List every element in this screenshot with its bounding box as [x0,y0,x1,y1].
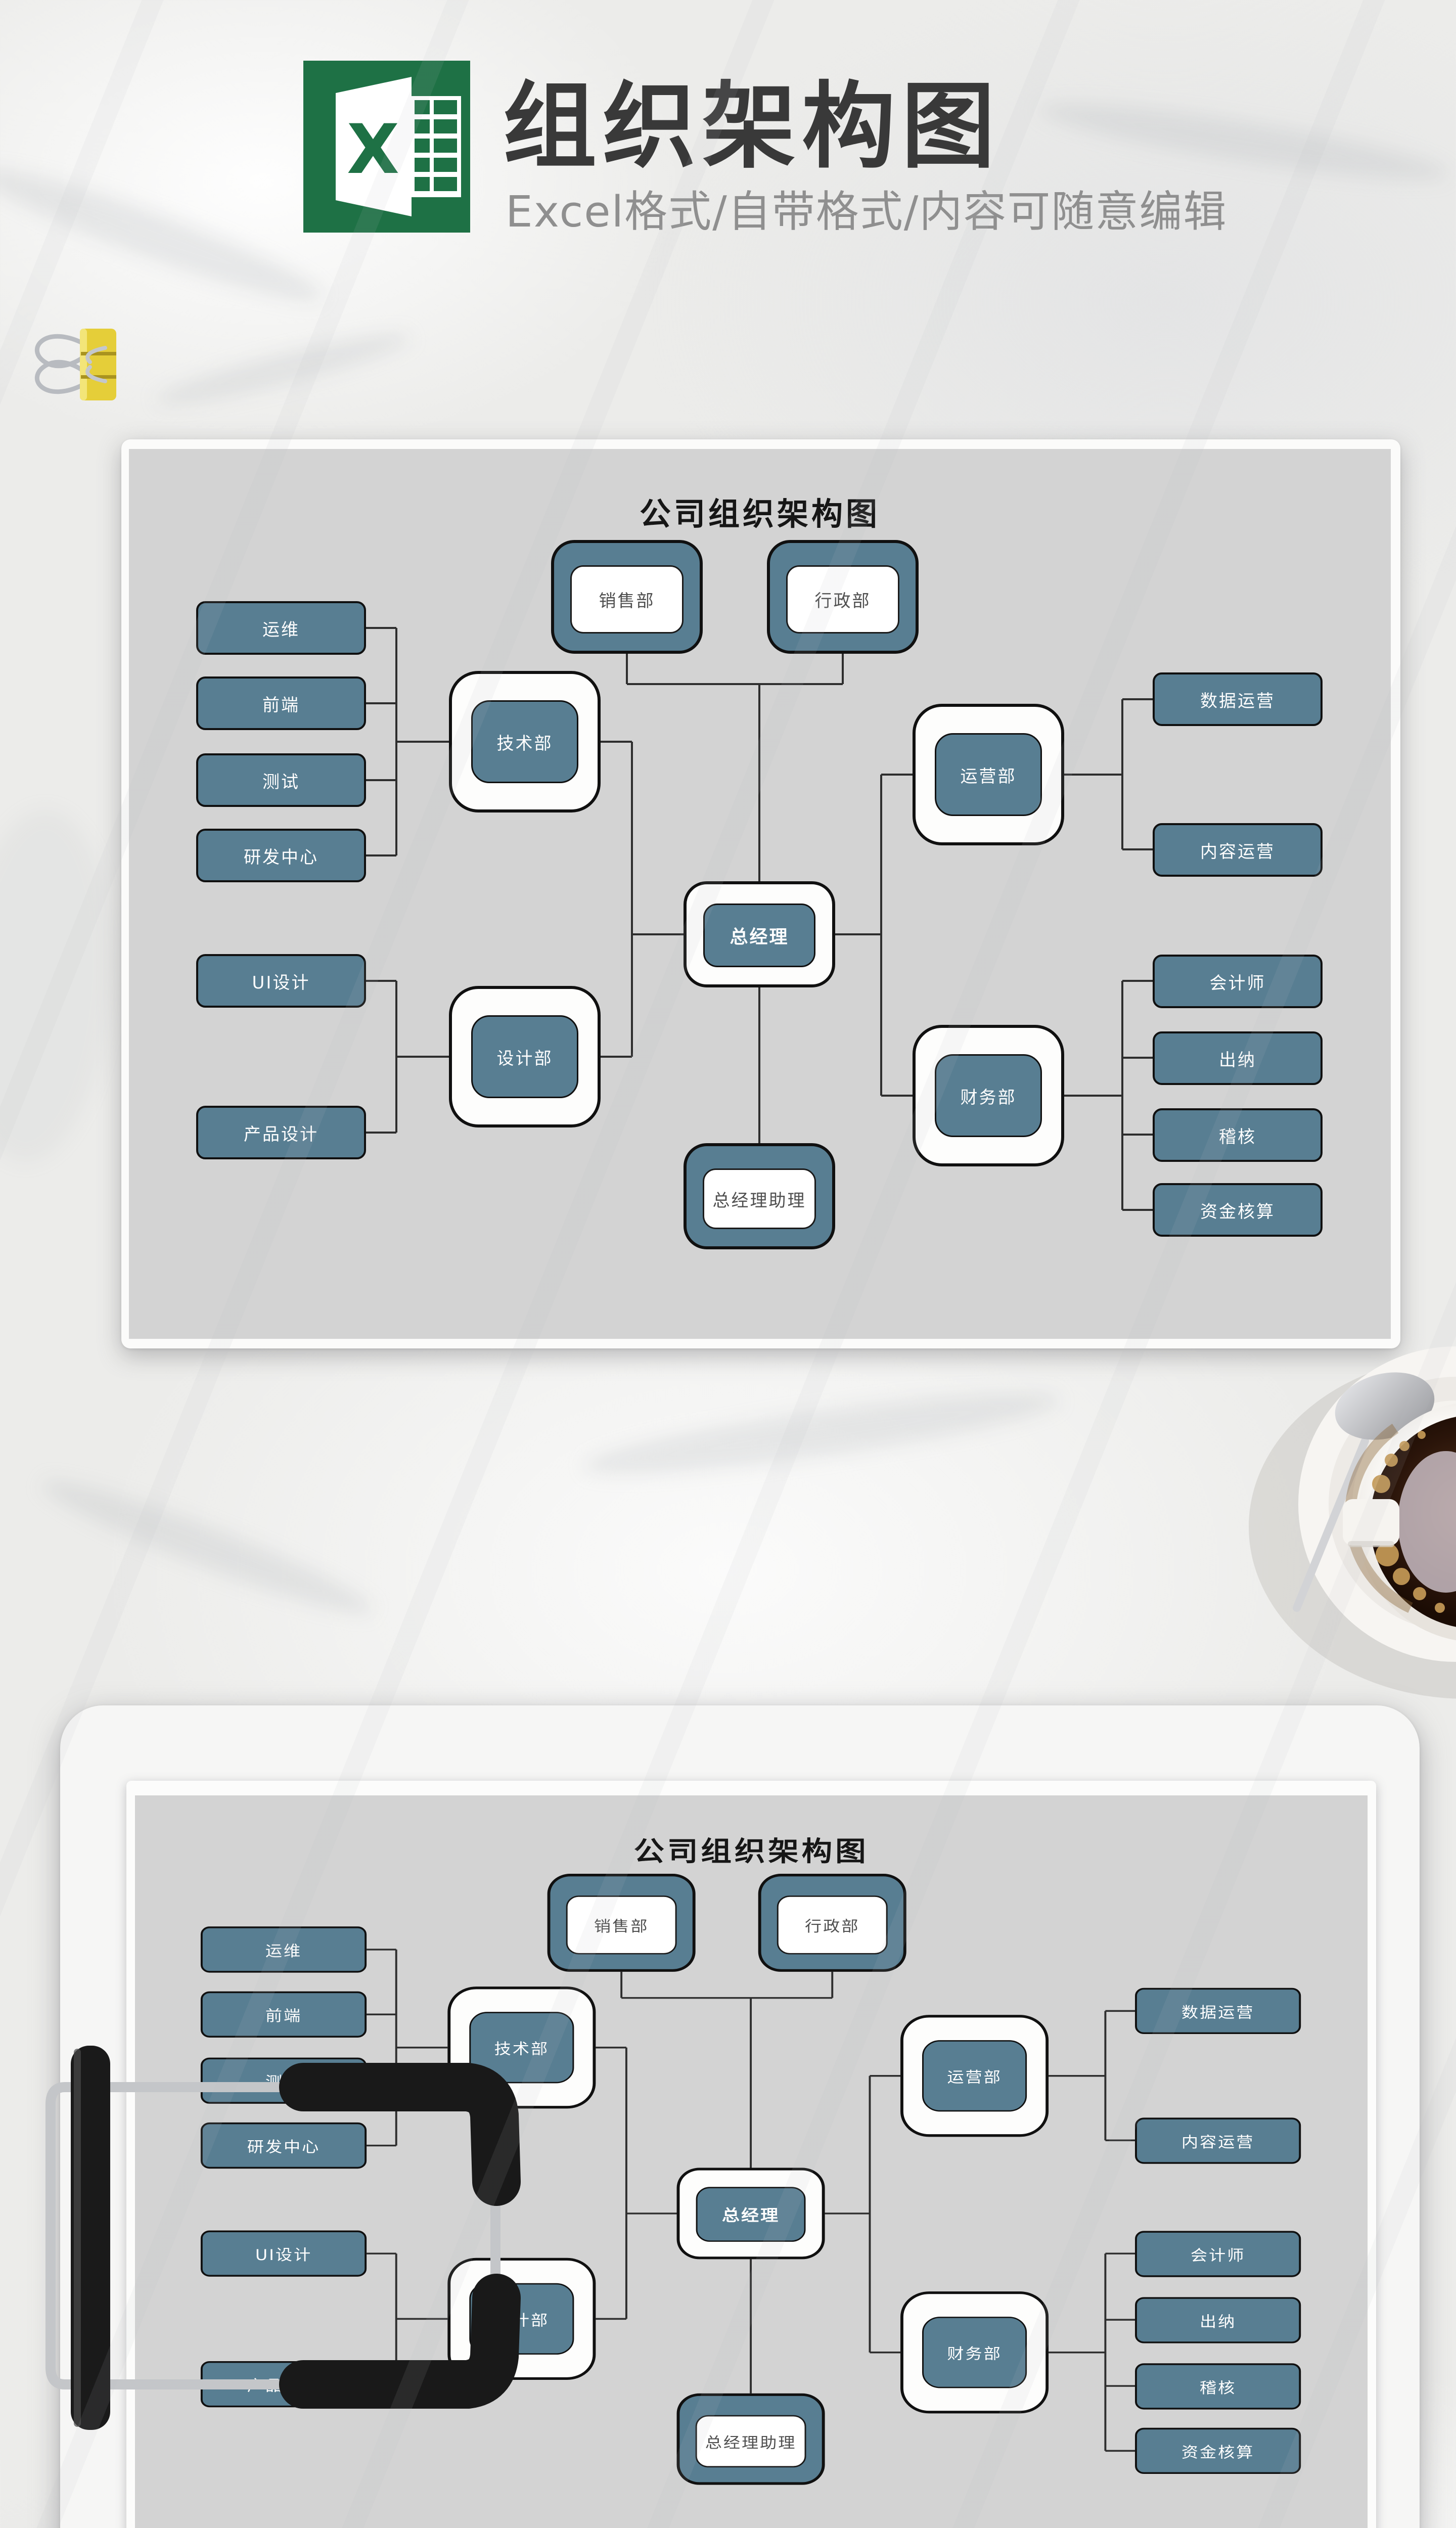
node-label: 前端 [262,691,300,716]
node-ops-maintenance: 运维 [196,601,366,655]
node-inner: 财务部 [935,1054,1042,1137]
page-subtitle: Excel格式/自带格式/内容可随意编辑 [506,188,1227,236]
node-label: 会计师 [1210,969,1266,994]
node-auditor: 稽核 [1135,2363,1301,2409]
node-label: 行政部 [805,1914,859,1935]
node-admin-dept: 行政部 [767,540,919,654]
node-label: 会计师 [1191,2243,1245,2265]
node-design-dept: 设计部 [449,986,601,1127]
marble-vein [0,804,123,1167]
node-label: 测试 [262,768,300,793]
node-frontend: 前端 [201,1992,367,2038]
node-operations-dept: 运营部 [900,2015,1049,2137]
node-data-operations: 数据运营 [1153,672,1323,726]
marble-vein [1036,89,1451,194]
node-label: 销售部 [594,1914,649,1935]
node-inner: 运营部 [935,733,1042,816]
node-content-operations: 内容运营 [1153,823,1323,877]
node-label: 稽核 [1219,1123,1256,1148]
node-accountant: 会计师 [1135,2231,1301,2277]
node-gm-assistant: 总经理助理 [677,2394,825,2485]
node-inner: 总经理 [703,904,815,967]
node-sales-dept: 销售部 [551,540,703,654]
node-sales-dept: 销售部 [548,1874,696,1972]
node-label: UI设计 [252,969,310,994]
binder-clip-icon [20,319,131,410]
node-testing: 测试 [196,753,366,807]
node-label: 出纳 [1200,2310,1236,2331]
node-inner: 设计部 [471,1015,578,1098]
node-label: 前端 [265,2004,302,2025]
node-frontend: 前端 [196,676,366,730]
node-label: 运维 [265,1939,302,1960]
node-label: 财务部 [947,2342,1002,2363]
node-label: 运维 [262,616,300,641]
node-label: 财务部 [961,1084,1017,1108]
node-label: 销售部 [599,587,655,612]
node-inner: 总经理 [696,2187,806,2242]
node-operations-dept: 运营部 [913,704,1064,845]
node-product-design: 产品设计 [196,1106,366,1159]
chart-sheet-1: 公司组织架构图销售部行政部总经理总经理助理技术部设计部运营部财务部运维前端测试研… [121,439,1400,1348]
page-title: 组织架构图 [503,76,1001,177]
node-cashier: 出纳 [1135,2297,1301,2343]
node-inner: 总经理助理 [696,2415,806,2467]
marble-vein [152,323,414,416]
node-tech-dept: 技术部 [449,671,601,812]
node-label: 总经理 [730,922,789,949]
node-ops-maintenance: 运维 [201,1926,367,1972]
node-inner: 财务部 [922,2317,1027,2388]
node-label: 总经理助理 [705,2430,797,2452]
node-label: 总经理助理 [713,1187,806,1211]
node-label: 总经理 [722,2203,780,2226]
node-general-manager: 总经理 [677,2168,825,2259]
node-finance-dept: 财务部 [913,1025,1064,1166]
node-label: 资金核算 [1181,2440,1255,2461]
node-label: 运营部 [947,2065,1002,2087]
node-admin-dept: 行政部 [758,1874,906,1972]
node-ui-design: UI设计 [196,954,366,1008]
node-label: 资金核算 [1200,1198,1275,1223]
node-label: 数据运营 [1181,2000,1255,2021]
node-fund-accounting: 资金核算 [1135,2428,1301,2474]
node-inner: 销售部 [570,565,684,634]
coffee-cup [1244,1325,1456,1709]
node-general-manager: 总经理 [684,881,835,987]
excel-letter: X [347,110,399,189]
marble-vein [0,152,331,319]
node-label: 运营部 [961,762,1017,787]
node-label: 技术部 [497,730,553,754]
node-inner: 总经理助理 [703,1168,816,1229]
org-chart-1: 公司组织架构图销售部行政部总经理总经理助理技术部设计部运营部财务部运维前端测试研… [129,449,1391,1339]
node-data-operations: 数据运营 [1135,1988,1301,2034]
node-label: 产品设计 [244,1120,318,1145]
clipboard-clip [40,2033,536,2442]
node-inner: 行政部 [786,565,899,634]
node-content-operations: 内容运营 [1135,2117,1301,2163]
node-auditor: 稽核 [1153,1108,1323,1162]
node-label: 设计部 [497,1045,553,1069]
node-label: 内容运营 [1181,2130,1255,2151]
node-label: 出纳 [1219,1046,1256,1071]
node-finance-dept: 财务部 [900,2291,1049,2413]
node-inner: 销售部 [566,1895,677,1954]
marble-vein [35,1465,380,1630]
node-gm-assistant: 总经理助理 [684,1143,835,1249]
node-label: 内容运营 [1200,838,1275,863]
node-label: 数据运营 [1200,687,1275,712]
node-rd-center: 研发中心 [196,829,366,882]
node-label: 研发中心 [244,843,318,868]
node-inner: 运营部 [922,2040,1027,2111]
marble-vein [580,1377,1062,1489]
node-fund-accounting: 资金核算 [1153,1183,1323,1237]
node-label: 行政部 [815,587,871,612]
node-label: 稽核 [1200,2376,1236,2397]
template-preview-page: { "header": { "title": "组织架构图", "subtitl… [0,0,1456,2528]
node-accountant: 会计师 [1153,955,1323,1008]
excel-icon: X [303,61,470,233]
node-inner: 技术部 [471,700,578,783]
node-cashier: 出纳 [1153,1031,1323,1085]
node-inner: 行政部 [777,1895,888,1954]
